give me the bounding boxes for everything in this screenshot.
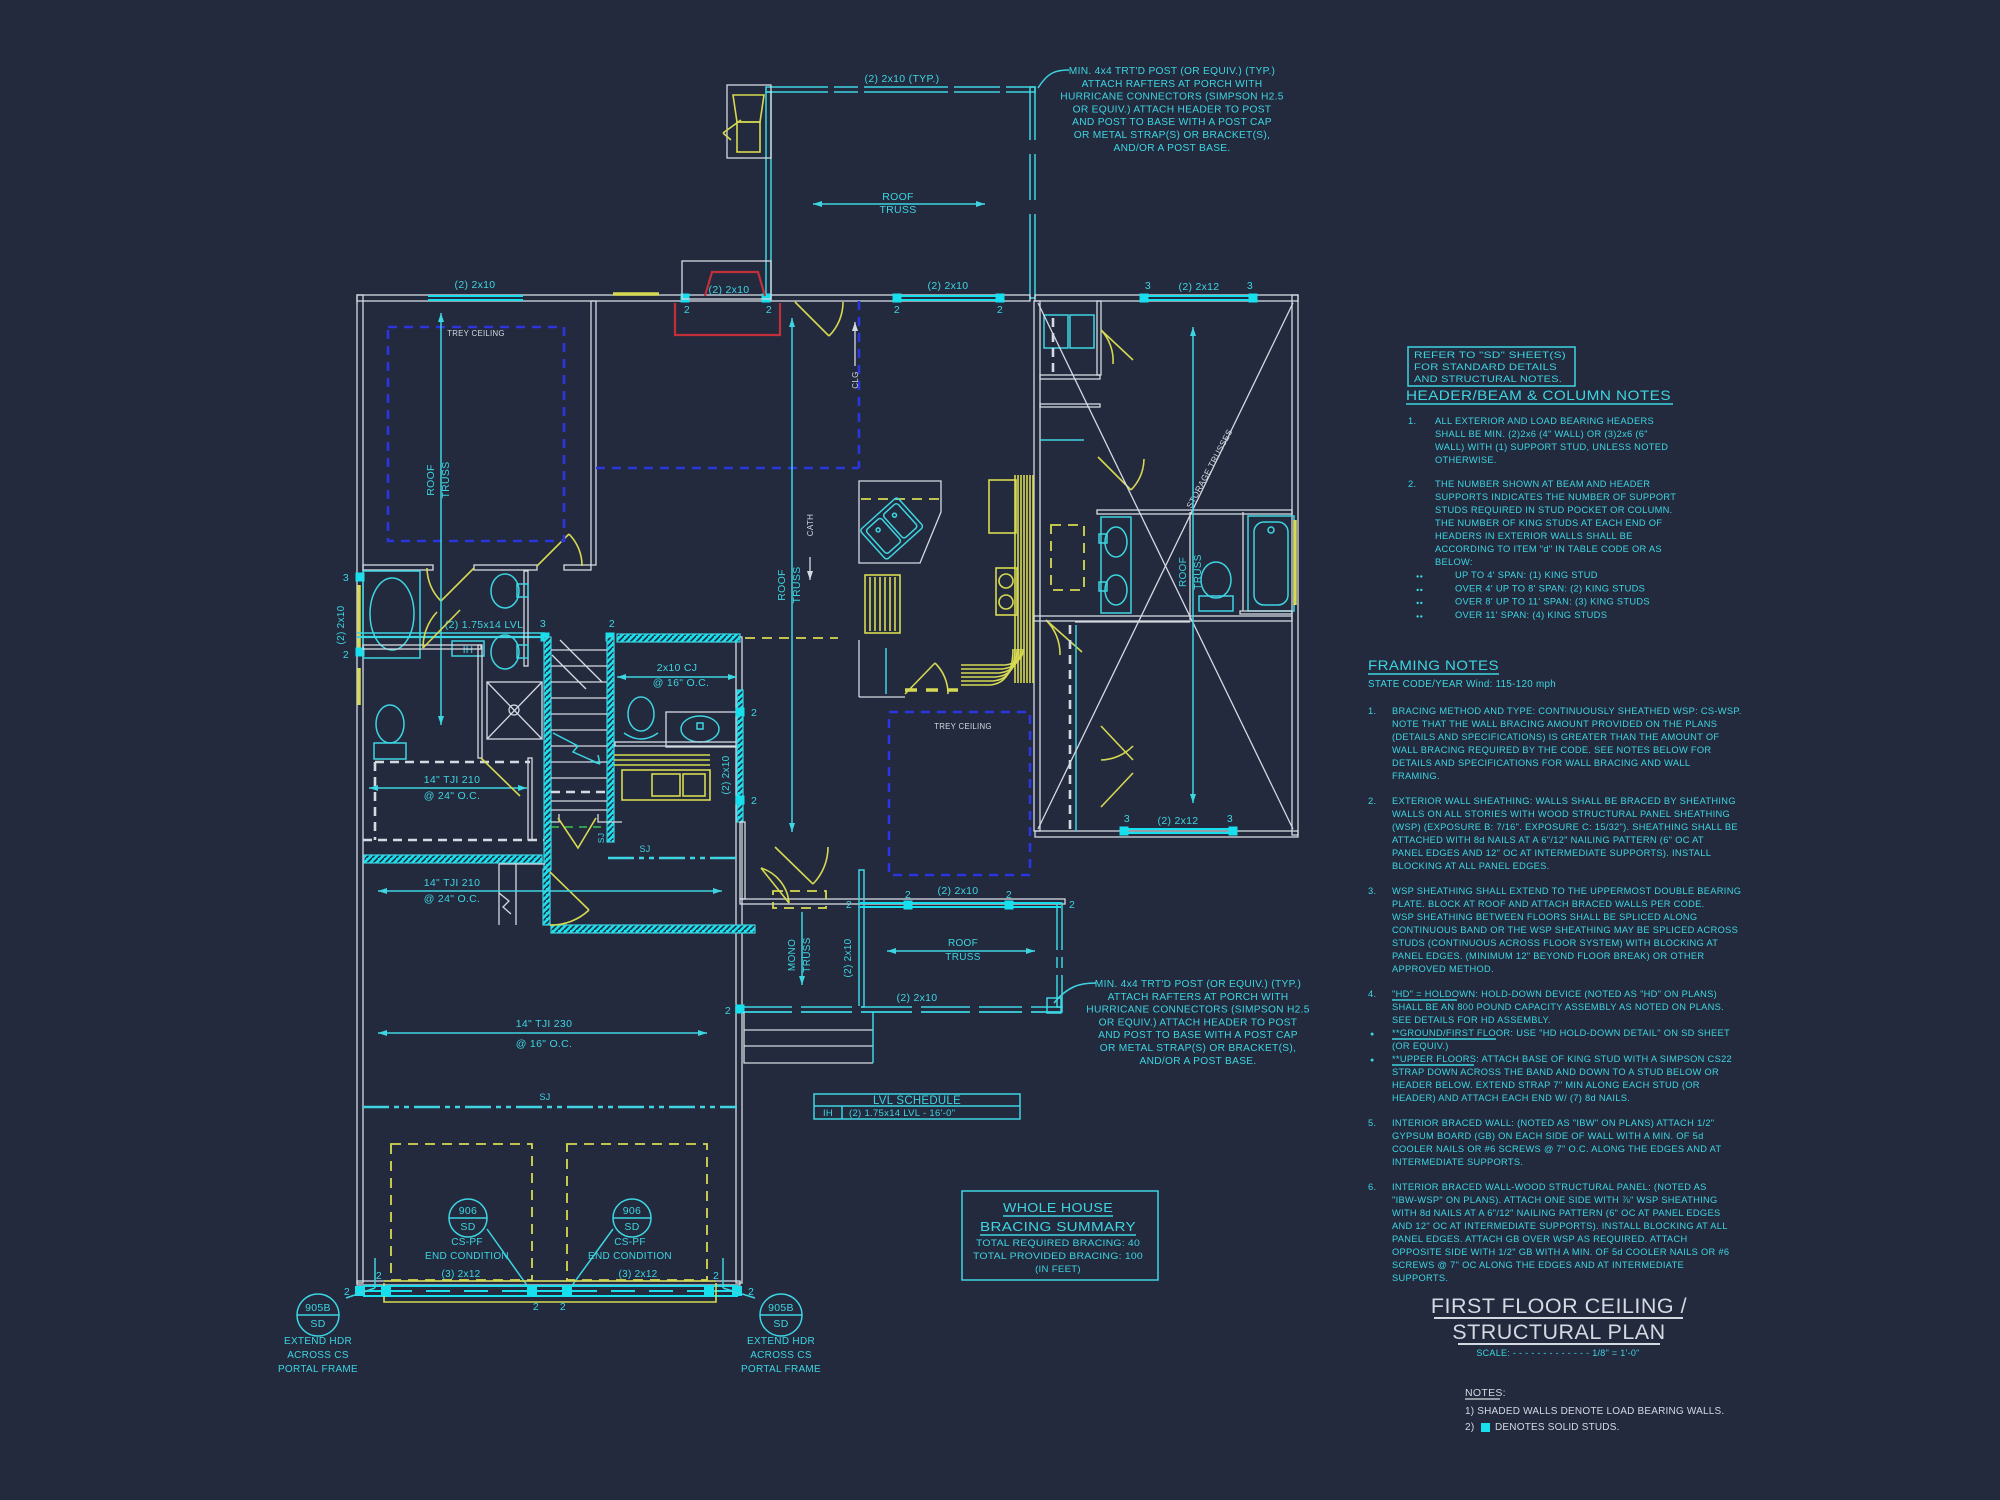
- svg-text:2: 2: [533, 1301, 539, 1313]
- svg-text:DETAILS AND SPECIFICATIONS FOR: DETAILS AND SPECIFICATIONS FOR WALL BRAC…: [1392, 758, 1690, 768]
- svg-text:2.: 2.: [1368, 796, 1376, 806]
- svg-text:2: 2: [609, 618, 615, 630]
- svg-text:OVER 4' UP TO 8' SPAN: (2) KIN: OVER 4' UP TO 8' SPAN: (2) KING STUDS: [1455, 583, 1645, 593]
- svg-text:SHALL BE AN 800 POUND CAPACITY: SHALL BE AN 800 POUND CAPACITY ASSEMBLY …: [1392, 1002, 1724, 1012]
- svg-text:3: 3: [1124, 813, 1130, 825]
- svg-text:2: 2: [1006, 889, 1012, 901]
- svg-text:PORTAL FRAME: PORTAL FRAME: [741, 1364, 821, 1375]
- svg-text:2: 2: [766, 304, 772, 316]
- svg-text:ATTACHED WITH 8d NAILS AT A 6": ATTACHED WITH 8d NAILS AT A 6"/12" NAILI…: [1392, 835, 1704, 845]
- svg-text:TOTAL REQUIRED BRACING: 40: TOTAL REQUIRED BRACING: 40: [976, 1238, 1140, 1249]
- svg-text:2: 2: [376, 1270, 382, 1282]
- svg-text:2: 2: [1069, 899, 1075, 911]
- svg-text:(2) 2x10: (2) 2x10: [336, 605, 347, 644]
- svg-text:905B: 905B: [305, 1302, 331, 1314]
- svg-text:(2) 2x10: (2) 2x10: [897, 992, 938, 1004]
- svg-text:HEADERS IN EXTERIOR WALLS SHAL: HEADERS IN EXTERIOR WALLS SHALL BE: [1435, 531, 1633, 541]
- svg-text:ACROSS CS: ACROSS CS: [750, 1350, 812, 1361]
- svg-text:2.: 2.: [1408, 479, 1416, 489]
- svg-text:BRACING SUMMARY: BRACING SUMMARY: [980, 1219, 1136, 1234]
- svg-text:COOLER NAILS OR #6 SCREWS @ 7": COOLER NAILS OR #6 SCREWS @ 7" O.C. ALON…: [1392, 1144, 1721, 1154]
- svg-text:WSP SHEATHING BETWEEN FLOORS S: WSP SHEATHING BETWEEN FLOORS SHALL BE SP…: [1392, 912, 1697, 922]
- svg-text:BLOCKING AT ALL PANEL EDGES.: BLOCKING AT ALL PANEL EDGES.: [1392, 861, 1550, 871]
- svg-text:ROOF: ROOF: [882, 191, 914, 203]
- svg-text:906: 906: [459, 1205, 477, 1217]
- svg-text:WALLS ON ALL STORIES WITH WOOD: WALLS ON ALL STORIES WITH WOOD STRUCTURA…: [1392, 809, 1730, 819]
- svg-text:TRUSS: TRUSS: [879, 204, 916, 216]
- svg-text:2x10 CJ: 2x10 CJ: [657, 662, 698, 674]
- svg-text:CATH: CATH: [806, 514, 815, 536]
- svg-text:FOR STANDARD DETAILS: FOR STANDARD DETAILS: [1414, 362, 1557, 373]
- svg-text:CS-PF: CS-PF: [614, 1237, 646, 1248]
- svg-text:HEADER/BEAM & COLUMN NOTES: HEADER/BEAM & COLUMN NOTES: [1406, 388, 1671, 403]
- svg-text:ALL EXTERIOR AND LOAD BEARING: ALL EXTERIOR AND LOAD BEARING HEADERS: [1435, 416, 1654, 426]
- svg-text:3: 3: [343, 572, 349, 584]
- svg-text:IH: IH: [463, 645, 474, 656]
- svg-text:(2) 1.75x14 LVL - 16'-0": (2) 1.75x14 LVL - 16'-0": [849, 1108, 955, 1119]
- svg-text:ROOF: ROOF: [948, 938, 978, 949]
- svg-text:SD: SD: [773, 1318, 788, 1330]
- svg-text:STUDS REQUIRED IN STUD POCKET: STUDS REQUIRED IN STUD POCKET OR COLUMN.: [1435, 505, 1673, 515]
- svg-text:STATE CODE/YEAR Wind: 115-120: STATE CODE/YEAR Wind: 115-120 mph: [1368, 679, 1556, 690]
- svg-text:MONO: MONO: [787, 939, 798, 971]
- svg-text:EXTEND HDR: EXTEND HDR: [747, 1336, 815, 1347]
- svg-text:TRUSS: TRUSS: [945, 952, 980, 963]
- svg-text:3.: 3.: [1368, 886, 1376, 896]
- svg-text:(2) 2x10: (2) 2x10: [455, 279, 496, 291]
- svg-text:2: 2: [751, 795, 757, 807]
- svg-text:APPROVED METHOD.: APPROVED METHOD.: [1392, 964, 1494, 974]
- svg-text:PLATE. BLOCK AT ROOF AND ATTAC: PLATE. BLOCK AT ROOF AND ATTACH BRACED W…: [1392, 899, 1705, 909]
- svg-text:PANEL EDGES. (MINIMUM 12" BEYO: PANEL EDGES. (MINIMUM 12" BEYOND FLOOR B…: [1392, 951, 1704, 961]
- svg-text:AND POST TO BASE WITH A POST C: AND POST TO BASE WITH A POST CAP: [1072, 117, 1272, 128]
- svg-text:FIRST FLOOR CEILING /: FIRST FLOOR CEILING /: [1431, 1294, 1687, 1318]
- svg-text:●: ●: [1370, 1031, 1375, 1038]
- svg-text:HURRICANE CONNECTORS (SIMPSON: HURRICANE CONNECTORS (SIMPSON H2.5: [1060, 92, 1283, 103]
- svg-text:AND STRUCTURAL NOTES.: AND STRUCTURAL NOTES.: [1414, 374, 1562, 385]
- svg-text:ACCORDING TO ITEM "d" IN TABLE: ACCORDING TO ITEM "d" IN TABLE CODE OR A…: [1435, 544, 1662, 554]
- svg-text:SJ: SJ: [639, 844, 650, 854]
- svg-text:905B: 905B: [768, 1302, 794, 1314]
- svg-text:(2) 2x10 (TYP.): (2) 2x10 (TYP.): [865, 73, 940, 85]
- svg-text:"IBW-WSP" ON PLANS). ATTACH ON: "IBW-WSP" ON PLANS). ATTACH ONE SIDE WIT…: [1392, 1195, 1718, 1205]
- svg-text:(3) 2x12: (3) 2x12: [441, 1269, 480, 1280]
- svg-text:(2) 2x10: (2) 2x10: [843, 938, 854, 977]
- svg-text:SUPPORTS.: SUPPORTS.: [1392, 1273, 1448, 1283]
- svg-text:1) SHADED WALLS DENOTE LOAD BE: 1) SHADED WALLS DENOTE LOAD BEARING WALL…: [1465, 1406, 1724, 1417]
- svg-text:PORTAL FRAME: PORTAL FRAME: [278, 1364, 358, 1375]
- svg-text:WHOLE HOUSE: WHOLE HOUSE: [1003, 1200, 1113, 1215]
- svg-text:3: 3: [540, 618, 546, 630]
- svg-text:WITH 8d NAILS AT A 6"/12" NAIL: WITH 8d NAILS AT A 6"/12" NAILING PATTER…: [1392, 1208, 1720, 1218]
- svg-text:2: 2: [684, 304, 690, 316]
- svg-text:MIN. 4x4 TRT'D POST (OR EQUIV.: MIN. 4x4 TRT'D POST (OR EQUIV.) (TYP.): [1069, 66, 1275, 77]
- svg-text:@ 24" O.C.: @ 24" O.C.: [424, 893, 480, 905]
- svg-text:PANEL EDGES AND 12" OC AT INTE: PANEL EDGES AND 12" OC AT INTERMEDIATE S…: [1392, 848, 1711, 858]
- svg-text:(3) 2x12: (3) 2x12: [618, 1269, 657, 1280]
- svg-text:HURRICANE CONNECTORS (SIMPSON: HURRICANE CONNECTORS (SIMPSON H2.5: [1086, 1005, 1309, 1016]
- svg-text:OR EQUIV.) ATTACH HEADER TO PO: OR EQUIV.) ATTACH HEADER TO POST: [1073, 104, 1272, 115]
- svg-text:@ 16" O.C.: @ 16" O.C.: [653, 677, 709, 689]
- svg-text:FRAMING.: FRAMING.: [1392, 771, 1440, 781]
- svg-text:EXTEND HDR: EXTEND HDR: [284, 1336, 352, 1347]
- svg-text:TRUSS: TRUSS: [791, 566, 803, 603]
- svg-text:EXTERIOR WALL SHEATHING: WALLS: EXTERIOR WALL SHEATHING: WALLS SHALL BE …: [1392, 796, 1736, 806]
- svg-text:INTERIOR BRACED WALL: (NOTED A: INTERIOR BRACED WALL: (NOTED AS "IBW" ON…: [1392, 1118, 1714, 1128]
- svg-text:OPPOSITE SIDE WITH 1/2" GB WIT: OPPOSITE SIDE WITH 1/2" GB WITH A MIN. O…: [1392, 1247, 1729, 1257]
- svg-text:NOTE THAT THE WALL BRACING AMO: NOTE THAT THE WALL BRACING AMOUNT PROVID…: [1392, 719, 1717, 729]
- svg-text:1.: 1.: [1368, 706, 1376, 716]
- svg-text:DENOTES SOLID STUDS.: DENOTES SOLID STUDS.: [1495, 1422, 1620, 1433]
- svg-text:LVL SCHEDULE: LVL SCHEDULE: [873, 1093, 961, 1107]
- svg-text:BRACING METHOD AND TYPE: CONTI: BRACING METHOD AND TYPE: CONTINUOUSLY SH…: [1392, 706, 1742, 716]
- svg-text:@ 16" O.C.: @ 16" O.C.: [516, 1038, 572, 1050]
- svg-text:14" TJI 210: 14" TJI 210: [424, 877, 480, 889]
- svg-text:ROOF: ROOF: [425, 464, 437, 496]
- svg-text:3: 3: [1145, 280, 1151, 292]
- svg-text:HEADER BELOW. EXTEND STRAP 7": HEADER BELOW. EXTEND STRAP 7" MIN ALONG …: [1392, 1080, 1700, 1090]
- svg-text:OR EQUIV.) ATTACH HEADER TO PO: OR EQUIV.) ATTACH HEADER TO POST: [1099, 1017, 1298, 1028]
- svg-text:ATTACH RAFTERS AT PORCH WITH: ATTACH RAFTERS AT PORCH WITH: [1108, 992, 1289, 1003]
- svg-text:TRUSS: TRUSS: [1193, 554, 1204, 589]
- svg-text:3: 3: [1227, 813, 1233, 825]
- svg-text:5.: 5.: [1368, 1118, 1376, 1128]
- svg-text:CONTINUOUS BAND OR THE WSP SHE: CONTINUOUS BAND OR THE WSP SHEATHING MAY…: [1392, 925, 1738, 935]
- svg-text:MIN. 4x4 TRT'D POST (OR EQUIV.: MIN. 4x4 TRT'D POST (OR EQUIV.) (TYP.): [1095, 979, 1301, 990]
- svg-text:SJ: SJ: [596, 833, 606, 844]
- svg-text:SJ: SJ: [539, 1092, 550, 1102]
- svg-text:(WSP) (EXPOSURE B: 7/16". EXPO: (WSP) (EXPOSURE B: 7/16". EXPOSURE C: 15…: [1392, 822, 1738, 832]
- svg-text:(2) 2x10: (2) 2x10: [928, 280, 969, 292]
- svg-text:(2) 1.75x14 LVL: (2) 1.75x14 LVL: [445, 619, 523, 631]
- svg-text:●●: ●●: [1416, 614, 1423, 620]
- svg-text:906: 906: [623, 1205, 641, 1217]
- svg-text:2: 2: [997, 304, 1003, 316]
- svg-text:IH: IH: [823, 1108, 833, 1119]
- svg-text:END CONDITION: END CONDITION: [588, 1251, 672, 1262]
- svg-text:REFER TO "SD" SHEET(S): REFER TO "SD" SHEET(S): [1414, 350, 1566, 361]
- svg-text:OVER 11' SPAN: (4) KING STUDS: OVER 11' SPAN: (4) KING STUDS: [1455, 610, 1607, 620]
- svg-text:GYPSUM BOARD (GB) ON EACH SIDE: GYPSUM BOARD (GB) ON EACH SIDE OF WALL W…: [1392, 1131, 1704, 1141]
- svg-text:"HD" = HOLDOWN: HOLD-DOWN DEVI: "HD" = HOLDOWN: HOLD-DOWN DEVICE (NOTED …: [1392, 989, 1717, 999]
- svg-text:2: 2: [343, 649, 349, 661]
- svg-text:TRUSS: TRUSS: [440, 461, 452, 498]
- svg-text:THE NUMBER SHOWN AT BEAM AND H: THE NUMBER SHOWN AT BEAM AND HEADER: [1435, 479, 1650, 489]
- svg-text:ROOF: ROOF: [776, 569, 788, 601]
- svg-text:(IN FEET): (IN FEET): [1035, 1264, 1081, 1275]
- svg-text:(DETAILS AND SPECIFICATIONS) I: (DETAILS AND SPECIFICATIONS) IS GREATER …: [1392, 732, 1719, 742]
- svg-text:TREY CEILING: TREY CEILING: [447, 329, 505, 338]
- svg-text:(2) 2x12: (2) 2x12: [1179, 281, 1220, 293]
- svg-text:1.: 1.: [1408, 416, 1416, 426]
- svg-text:ACROSS CS: ACROSS CS: [287, 1350, 349, 1361]
- svg-text:●●: ●●: [1416, 574, 1423, 580]
- svg-text:INTERMEDIATE SUPPORTS.: INTERMEDIATE SUPPORTS.: [1392, 1157, 1523, 1167]
- svg-text:OTHERWISE.: OTHERWISE.: [1435, 455, 1497, 465]
- svg-text:(OR EQUIV.): (OR EQUIV.): [1392, 1041, 1449, 1051]
- svg-text:6.: 6.: [1368, 1182, 1376, 1192]
- svg-text:OVER 8' UP TO 11' SPAN: (3) KI: OVER 8' UP TO 11' SPAN: (3) KING STUDS: [1455, 597, 1650, 607]
- svg-text:3: 3: [1247, 280, 1253, 292]
- svg-text:AND POST TO BASE WITH A POST C: AND POST TO BASE WITH A POST CAP: [1098, 1030, 1298, 1041]
- svg-text:(2) 2x10: (2) 2x10: [709, 284, 750, 296]
- svg-text:SD: SD: [624, 1221, 639, 1233]
- svg-text:14" TJI 210: 14" TJI 210: [424, 774, 480, 786]
- svg-text:INTERIOR BRACED WALL-WOOD STRU: INTERIOR BRACED WALL-WOOD STRUCTURAL PAN…: [1392, 1182, 1707, 1192]
- svg-text:SD: SD: [310, 1318, 325, 1330]
- svg-text:2: 2: [894, 304, 900, 316]
- svg-text:TOTAL PROVIDED BRACING: 100: TOTAL PROVIDED BRACING: 100: [973, 1251, 1143, 1262]
- svg-text:CS-PF: CS-PF: [451, 1237, 483, 1248]
- svg-text:STRUCTURAL PLAN: STRUCTURAL PLAN: [1452, 1320, 1665, 1344]
- svg-text:@ 24" O.C.: @ 24" O.C.: [424, 790, 480, 802]
- svg-text:2): 2): [1465, 1422, 1475, 1433]
- svg-text:TRUSS: TRUSS: [802, 937, 813, 972]
- svg-text:CLG: CLG: [851, 371, 860, 388]
- svg-text:AND/OR A POST BASE.: AND/OR A POST BASE.: [1139, 1056, 1256, 1067]
- svg-text:14" TJI 230: 14" TJI 230: [516, 1018, 572, 1030]
- svg-text:2: 2: [905, 889, 911, 901]
- svg-text:2: 2: [560, 1301, 566, 1313]
- svg-text:BELOW:: BELOW:: [1435, 557, 1473, 567]
- svg-text:SD: SD: [460, 1221, 475, 1233]
- svg-text:WSP SHEATHING SHALL EXTEND TO: WSP SHEATHING SHALL EXTEND TO THE UPPERM…: [1392, 886, 1741, 896]
- svg-text:SUPPORTS INDICATES THE NUMBER: SUPPORTS INDICATES THE NUMBER OF SUPPORT: [1435, 492, 1676, 502]
- svg-text:END CONDITION: END CONDITION: [425, 1251, 509, 1262]
- svg-text:●: ●: [1370, 1057, 1375, 1064]
- svg-text:THE NUMBER OF KING STUDS AT EA: THE NUMBER OF KING STUDS AT EACH END OF: [1435, 518, 1662, 528]
- svg-text:NOTES:: NOTES:: [1465, 1387, 1506, 1399]
- svg-text:(2) 2x10: (2) 2x10: [938, 885, 979, 897]
- svg-text:4.: 4.: [1368, 989, 1376, 999]
- svg-text:WALL BRACING REQUIRED BY THE C: WALL BRACING REQUIRED BY THE CODE. SEE N…: [1392, 745, 1711, 755]
- svg-text:ATTACH RAFTERS AT PORCH WITH: ATTACH RAFTERS AT PORCH WITH: [1082, 79, 1263, 90]
- svg-text:OR METAL STRAP(S) OR BRACKET(S: OR METAL STRAP(S) OR BRACKET(S),: [1100, 1043, 1296, 1054]
- svg-text:WALL) WITH (1) SUPPORT STUD, U: WALL) WITH (1) SUPPORT STUD, UNLESS NOTE…: [1435, 442, 1668, 452]
- svg-text:SHALL BE MIN. (2)2x6 (4" WALL): SHALL BE MIN. (2)2x6 (4" WALL) OR (3)2x6…: [1435, 429, 1648, 439]
- svg-text:SEE DETAILS FOR HD ASSEMBLY.: SEE DETAILS FOR HD ASSEMBLY.: [1392, 1015, 1551, 1025]
- svg-text:2: 2: [751, 707, 757, 719]
- svg-text:●●: ●●: [1416, 587, 1423, 593]
- svg-text:TREY CEILING: TREY CEILING: [934, 722, 992, 731]
- svg-text:FRAMING NOTES: FRAMING NOTES: [1368, 658, 1499, 673]
- svg-text:SCALE: - - - - - - - - - - -: SCALE: - - - - - - - - - - - - - 1/8" = …: [1476, 1348, 1639, 1358]
- svg-text:UP TO 4' SPAN: (1) KING STUD: UP TO 4' SPAN: (1) KING STUD: [1455, 570, 1598, 580]
- svg-text:STRAP DOWN ACROSS THE BAND AND: STRAP DOWN ACROSS THE BAND AND DOWN TO A…: [1392, 1067, 1719, 1077]
- svg-text:AND 12" OC AT INTERMEDIATE SUP: AND 12" OC AT INTERMEDIATE SUPPORTS). IN…: [1392, 1221, 1728, 1231]
- svg-text:2: 2: [713, 1270, 719, 1282]
- svg-text:SCREWS @ 7" OC ALONG THE EDGES: SCREWS @ 7" OC ALONG THE EDGES AND AT IN…: [1392, 1260, 1684, 1270]
- svg-text:2: 2: [846, 899, 852, 911]
- svg-text:(2) 2x10: (2) 2x10: [721, 755, 732, 794]
- svg-text:●●: ●●: [1416, 601, 1423, 607]
- svg-text:STUDS (CONTINUOUS ACROSS FLOOR: STUDS (CONTINUOUS ACROSS FLOOR SYSTEM) W…: [1392, 938, 1718, 948]
- svg-text:AND/OR A POST BASE.: AND/OR A POST BASE.: [1113, 143, 1230, 154]
- svg-text:**GROUND/FIRST FLOOR: USE "H: **GROUND/FIRST FLOOR: USE "HD HOLD-DOWN …: [1392, 1028, 1730, 1038]
- svg-text:(2) 2x12: (2) 2x12: [1158, 815, 1199, 827]
- svg-text:HEADER) AND ATTACH EACH END W/: HEADER) AND ATTACH EACH END W/ (7) 8d NA…: [1392, 1093, 1630, 1103]
- svg-text:PANEL EDGES. ATTACH GB OVER WS: PANEL EDGES. ATTACH GB OVER WSP AS REQUI…: [1392, 1234, 1687, 1244]
- svg-text:ROOF: ROOF: [1178, 557, 1189, 587]
- svg-text:**UPPER FLOORS: ATTACH BASE OF: **UPPER FLOORS: ATTACH BASE OF KING STUD…: [1392, 1054, 1732, 1064]
- svg-text:2: 2: [725, 1005, 731, 1017]
- svg-text:OR METAL STRAP(S) OR BRACKET(S: OR METAL STRAP(S) OR BRACKET(S),: [1074, 130, 1270, 141]
